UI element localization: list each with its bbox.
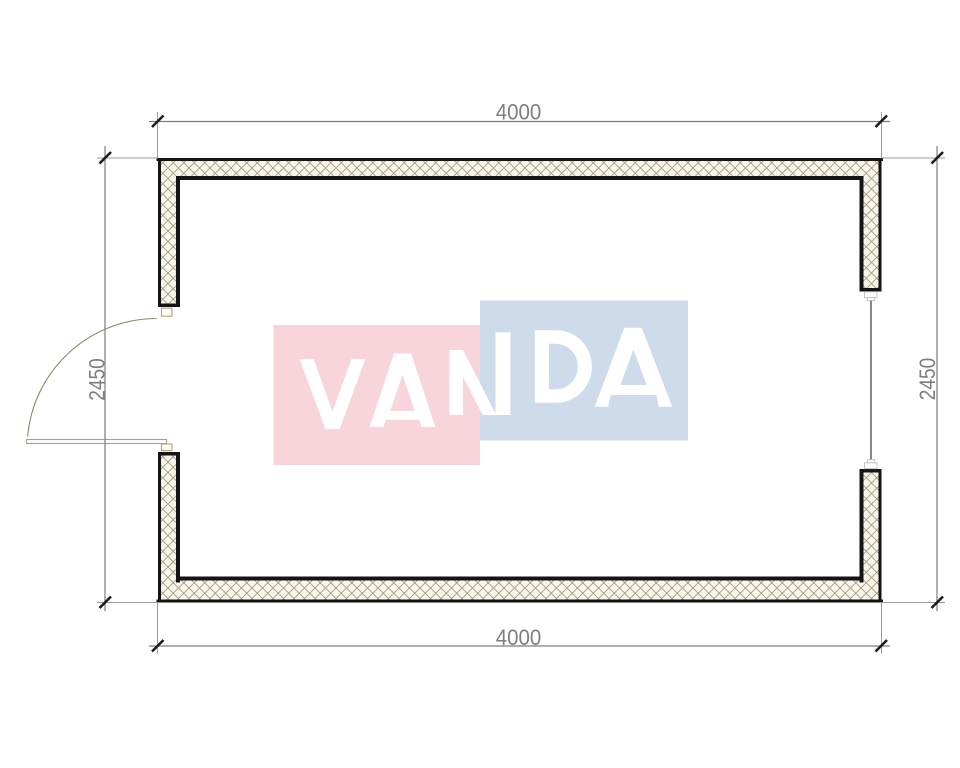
svg-text:4000: 4000 — [496, 100, 542, 125]
svg-text:2450: 2450 — [85, 358, 110, 401]
svg-text:4000: 4000 — [496, 625, 542, 650]
svg-text:2450: 2450 — [915, 358, 940, 401]
